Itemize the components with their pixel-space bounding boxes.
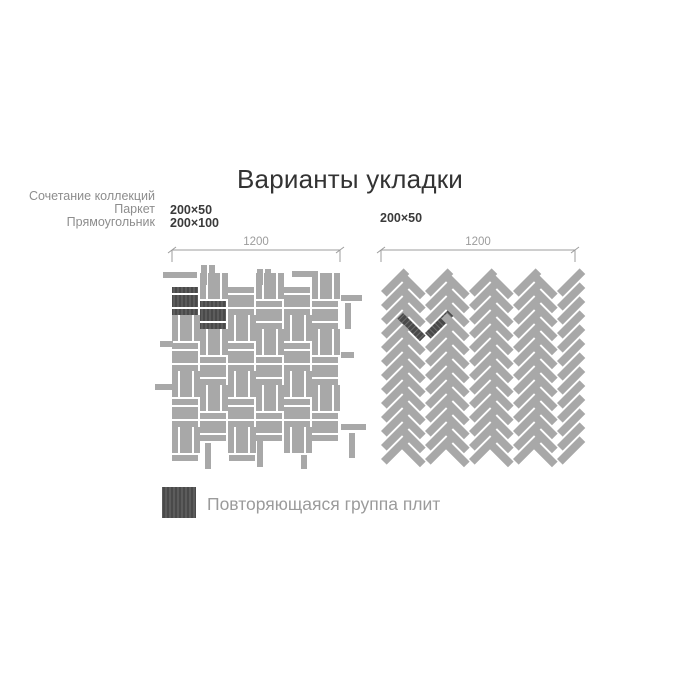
tile	[284, 309, 310, 315]
tile	[162, 487, 196, 518]
tile	[320, 273, 332, 299]
tile	[312, 301, 338, 307]
tile	[312, 309, 338, 321]
tile	[200, 323, 226, 329]
tile	[200, 329, 206, 355]
tile	[256, 365, 282, 377]
tile	[278, 329, 284, 355]
tile	[301, 455, 307, 469]
tile	[306, 371, 312, 397]
diagram-canvas	[0, 0, 700, 700]
tile	[236, 427, 248, 453]
tile	[284, 365, 310, 371]
tile	[172, 287, 198, 293]
tile	[284, 343, 310, 349]
tile	[236, 315, 248, 341]
tile	[312, 385, 318, 411]
tile	[256, 435, 282, 441]
right-tile-size-label: 200×50	[380, 211, 422, 225]
tile	[284, 421, 310, 427]
tile	[236, 371, 248, 397]
tile	[200, 309, 226, 321]
tile	[284, 407, 310, 419]
tile	[334, 329, 340, 355]
tile	[209, 265, 215, 285]
collections-label: Сочетание коллекций Паркет Прямоугольник	[29, 190, 155, 229]
tile	[256, 329, 262, 355]
tile	[284, 287, 310, 293]
tile	[257, 441, 263, 467]
tile	[155, 384, 172, 390]
tile	[278, 385, 284, 411]
tile	[172, 421, 198, 427]
tile	[284, 427, 290, 453]
tile	[200, 413, 226, 419]
tile	[284, 295, 310, 307]
tile	[200, 385, 206, 411]
tile	[208, 385, 220, 411]
legend-swatch	[162, 487, 196, 518]
tile	[180, 371, 192, 397]
tile	[250, 371, 256, 397]
tile	[228, 407, 254, 419]
left-dimension-label: 1200	[172, 236, 340, 248]
tile	[257, 269, 263, 285]
tile	[278, 273, 284, 299]
tile	[312, 365, 338, 377]
tile	[172, 399, 198, 405]
tile	[284, 371, 290, 397]
tile	[256, 413, 282, 419]
tile	[306, 427, 312, 453]
tile	[292, 371, 304, 397]
tile	[284, 399, 310, 405]
tile	[256, 357, 282, 363]
tile	[208, 329, 220, 355]
tile	[341, 424, 366, 430]
tile	[160, 341, 173, 347]
tile	[180, 315, 192, 341]
tile	[200, 421, 226, 433]
right-dimension-label: 1200	[381, 236, 575, 248]
tile	[256, 385, 262, 411]
basketweave-pattern	[155, 265, 366, 469]
tile	[228, 399, 254, 405]
tile	[334, 385, 340, 411]
tile	[292, 427, 304, 453]
tile	[320, 329, 332, 355]
tile	[229, 455, 255, 461]
tile	[312, 421, 338, 433]
tile	[200, 379, 226, 385]
tile	[312, 435, 338, 441]
tile	[334, 273, 340, 299]
tile	[320, 385, 332, 411]
dimension-lines	[168, 247, 579, 262]
tile	[250, 427, 256, 453]
tile	[194, 427, 200, 453]
tile	[228, 343, 254, 349]
tile	[222, 273, 228, 299]
tile	[256, 309, 282, 321]
tile	[228, 351, 254, 363]
tile	[312, 357, 338, 363]
tile	[265, 269, 271, 285]
left-tile-sizes-label: 200×50 200×100	[170, 204, 219, 229]
herringbone-pattern	[381, 268, 585, 467]
tile	[264, 385, 276, 411]
tile	[200, 301, 226, 307]
tile	[312, 379, 338, 385]
tile	[194, 315, 200, 341]
tile	[200, 435, 226, 441]
tile	[292, 315, 304, 341]
tile	[172, 351, 198, 363]
tile	[256, 323, 282, 329]
tile	[284, 351, 310, 363]
tile	[341, 295, 362, 301]
tile	[200, 357, 226, 363]
tile	[228, 427, 234, 453]
tile	[312, 413, 338, 419]
tile	[200, 365, 226, 377]
legend-label: Повторяющаяся группа плит	[207, 494, 440, 515]
tile	[205, 443, 211, 469]
tile	[222, 385, 228, 411]
tile	[228, 421, 254, 427]
tile	[172, 371, 178, 397]
tile	[228, 309, 254, 315]
tile	[201, 265, 207, 285]
tile	[256, 379, 282, 385]
tile	[349, 433, 355, 458]
tile	[172, 365, 198, 371]
tile	[264, 329, 276, 355]
tile	[250, 315, 256, 341]
tile	[172, 315, 178, 341]
tile	[228, 315, 234, 341]
tile	[256, 301, 282, 307]
layout-variants-page: Варианты укладки Сочетание коллекций Пар…	[0, 0, 700, 700]
tile	[345, 303, 351, 329]
tile	[163, 272, 197, 278]
collections-line-3: Прямоугольник	[29, 216, 155, 229]
tile	[312, 323, 338, 329]
tile	[172, 407, 198, 419]
tile	[172, 343, 198, 349]
tile	[228, 365, 254, 371]
tile	[228, 295, 254, 307]
tile	[172, 309, 198, 315]
tile	[312, 329, 318, 355]
tile	[292, 271, 318, 277]
tile	[306, 315, 312, 341]
left-tile-size-1: 200×50	[170, 204, 219, 217]
tile	[228, 287, 254, 293]
tile	[341, 352, 354, 358]
tile	[284, 315, 290, 341]
tile	[172, 455, 198, 461]
tile	[194, 371, 200, 397]
tile	[256, 421, 282, 433]
tile	[228, 371, 234, 397]
tile	[180, 427, 192, 453]
tile	[172, 295, 198, 307]
tile	[172, 427, 178, 453]
left-tile-size-2: 200×100	[170, 217, 219, 230]
tile	[222, 329, 228, 355]
